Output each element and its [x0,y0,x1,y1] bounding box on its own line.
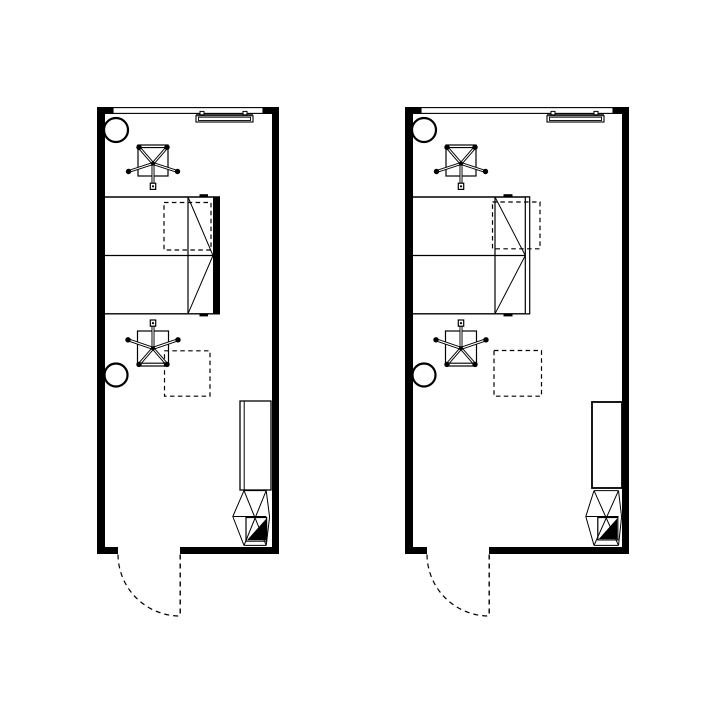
bed-latch-bottom [200,313,209,316]
chair-top-caster-2 [164,145,169,150]
chair-bottom-leg-1 [139,348,153,364]
shelf-bracket-right [243,111,247,114]
bed-footboard-double [525,197,529,314]
shelf-bracket-left [200,111,204,114]
chair-bottom-foot-dot [152,322,154,324]
chair-top-caster-4 [175,169,180,174]
chair-bottom-caster-1 [136,362,141,367]
chair-top-leg-2 [153,147,167,163]
shelf-board [547,116,604,122]
bed-latch-bottom [504,313,513,316]
chair-top-caster-2 [472,145,477,150]
circle-fixture-top [412,118,436,142]
chair-bottom-caster-4 [483,337,488,342]
rack-left-upper [586,491,594,517]
window-stub-left [104,107,113,114]
bed-diagonal-lower [188,256,213,314]
floor-plan-right [405,107,629,616]
circle-fixture-bottom [413,364,436,387]
floor-dashed-square [165,351,211,396]
window-stub-right [263,107,272,114]
wall-bottom-left-segment [405,547,427,554]
chair-bottom-caster-4 [175,337,180,342]
rack-right-lower [619,517,622,545]
chair-top-hub [151,161,155,165]
chair-bottom-caster-1 [444,362,449,367]
chair-top-leg-3 [437,164,462,172]
floorplan-canvas [0,0,712,702]
circle-fixture-top [104,118,128,142]
chair-bottom-leg-3 [436,340,461,349]
window-stub-right [613,107,622,114]
bed-diagonal-upper [495,197,525,256]
chair-top-leg-2 [461,147,475,163]
window-glazing [421,108,613,114]
bed-dashed-overlay [493,202,541,249]
chair-top-leg-4 [461,164,486,172]
shelf-bracket-left [551,111,555,114]
rack-right-upper [619,491,622,517]
chair-top-foot-dot [460,185,462,187]
chair-bottom-caster-3 [433,337,438,342]
chair-top-caster-3 [126,169,131,174]
chair-bottom-leg-1 [447,348,461,364]
chair-bottom-foot-dot [460,322,462,324]
wall-bottom-right-segment [489,547,629,554]
wall-left [97,107,105,554]
chair-bottom-hub [151,346,155,350]
chair-bottom-caster-3 [125,337,130,342]
chair-top-caster-3 [434,169,439,174]
chair-bottom-caster-2 [472,362,477,367]
door-swing-arc [427,555,489,617]
wall-bottom-left-segment [97,547,118,554]
chair-bottom-leg-2 [461,348,475,364]
chair-bottom-leg-4 [461,340,486,349]
bed-headboard-bar [213,197,220,314]
chair-bottom-caster-2 [164,362,169,367]
chair-top-hub [459,161,463,165]
chair-bottom-hub [459,346,463,350]
rack-left-upper [233,491,244,517]
chair-bottom-leg-3 [128,340,153,349]
shelf-bracket-right [594,111,598,114]
chair-top-leg-3 [129,164,154,172]
bed-latch-top [200,194,209,197]
chair-bottom-leg-4 [153,340,178,349]
bed-latch-top [504,194,513,197]
drawing-area [0,0,712,702]
floor-dashed-square [494,351,542,397]
bed-diagonal-lower [495,256,525,314]
chair-top-leg-1 [139,147,153,163]
chair-top-caster-1 [136,145,141,150]
chair-top-caster-4 [483,169,488,174]
window-stub-left [412,107,421,114]
wardrobe [592,402,622,488]
chair-top-foot-dot [152,185,154,187]
shelf-board [196,116,253,122]
rack-left-lower [233,517,244,546]
circle-fixture-bottom [105,364,128,387]
rack-left-lower [586,517,594,546]
chair-top-leg-1 [447,147,461,163]
wall-left [405,107,413,554]
floor-plan-left [97,107,279,616]
bed-diagonal-upper [188,197,213,256]
wall-right [622,107,629,554]
chair-top-leg-4 [153,164,178,172]
chair-top-caster-1 [444,145,449,150]
wall-right [272,107,279,554]
rack-right-upper [266,491,269,517]
wall-bottom-right-segment [180,547,279,554]
window-glazing [113,108,263,114]
door-swing-arc [118,555,180,617]
